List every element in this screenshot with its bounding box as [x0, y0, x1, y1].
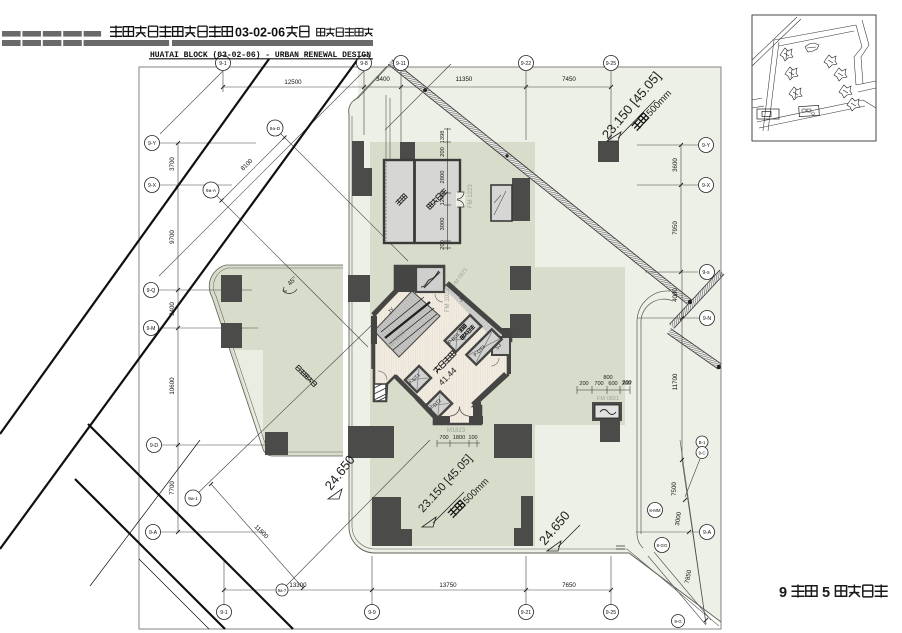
svg-text:200: 200 — [622, 380, 631, 386]
svg-text:7450: 7450 — [562, 76, 576, 83]
svg-text:10600: 10600 — [169, 377, 176, 395]
svg-text:1200: 1200 — [440, 193, 446, 206]
svg-text:9-22: 9-22 — [521, 61, 531, 67]
svg-text:9-25: 9-25 — [606, 61, 616, 67]
svg-text:9a-7: 9a-7 — [278, 588, 287, 593]
svg-text:9-D: 9-D — [150, 443, 159, 449]
svg-text:9-1: 9-1 — [220, 610, 228, 616]
svg-text:2800: 2800 — [440, 171, 446, 184]
svg-text:9-s: 9-s — [702, 270, 710, 276]
svg-text:9-9: 9-9 — [368, 610, 376, 616]
svg-text:3600: 3600 — [672, 158, 679, 172]
svg-text:3400: 3400 — [376, 76, 390, 83]
svg-text:FM 1223: FM 1223 — [468, 184, 474, 208]
svg-text:9-M: 9-M — [147, 326, 156, 332]
svg-text:1398: 1398 — [440, 131, 446, 144]
svg-text:9a-A: 9a-A — [206, 188, 217, 194]
svg-text:600: 600 — [608, 381, 617, 387]
svg-text:11700: 11700 — [672, 373, 679, 390]
svg-text:3000: 3000 — [440, 218, 446, 231]
svg-text:8-GG: 8-GG — [657, 543, 668, 548]
svg-text:100: 100 — [468, 435, 477, 441]
svg-text:12500: 12500 — [284, 79, 302, 86]
svg-text:9-25: 9-25 — [606, 610, 616, 616]
svg-text:3400: 3400 — [169, 302, 176, 316]
svg-text:7950: 7950 — [672, 221, 679, 235]
svg-text:7700: 7700 — [169, 481, 176, 495]
svg-text:9-X: 9-X — [702, 183, 711, 189]
svg-text:9-C: 9-C — [698, 451, 705, 456]
svg-text:9-G: 9-G — [674, 619, 682, 624]
svg-text:FM 1023: FM 1023 — [445, 288, 451, 312]
svg-text:700: 700 — [439, 435, 448, 441]
svg-text:9-Y: 9-Y — [702, 143, 711, 149]
svg-text:9a-D: 9a-D — [270, 126, 281, 132]
svg-text:9-Y: 9-Y — [148, 141, 157, 147]
svg-text:700: 700 — [594, 381, 603, 387]
svg-text:03-02-06: 03-02-06 — [235, 26, 285, 40]
svg-text:9-11: 9-11 — [396, 61, 406, 67]
svg-text:9: 9 — [779, 585, 787, 601]
svg-text:5: 5 — [822, 585, 830, 601]
svg-text:13750: 13750 — [439, 582, 457, 589]
svg-text:7650: 7650 — [562, 582, 576, 589]
svg-text:9-8: 9-8 — [360, 61, 368, 67]
svg-text:200: 200 — [440, 147, 446, 157]
svg-text:B-1: B-1 — [699, 440, 706, 445]
svg-text:13300: 13300 — [289, 582, 307, 589]
svg-text:9-1: 9-1 — [219, 61, 227, 67]
svg-text:3700: 3700 — [169, 157, 176, 171]
svg-text:9-N: 9-N — [703, 316, 712, 322]
svg-text:4000: 4000 — [672, 288, 679, 302]
svg-text:8-MM: 8-MM — [649, 508, 661, 513]
svg-text:9-X: 9-X — [148, 183, 157, 189]
svg-text:FM 0821: FM 0821 — [597, 396, 619, 402]
svg-text:9700: 9700 — [169, 230, 176, 244]
svg-text:9-21: 9-21 — [521, 610, 531, 616]
svg-text:8100: 8100 — [240, 157, 255, 172]
svg-text:7500: 7500 — [671, 482, 678, 496]
svg-text:1800: 1800 — [453, 435, 465, 441]
svg-text:9-A: 9-A — [149, 530, 158, 536]
svg-text:200: 200 — [440, 240, 446, 250]
svg-text:M1823: M1823 — [447, 428, 466, 434]
svg-text:200: 200 — [579, 381, 588, 387]
svg-text:11350: 11350 — [456, 76, 473, 83]
svg-text:9-Q: 9-Q — [147, 288, 156, 294]
svg-text:9-A: 9-A — [703, 530, 712, 536]
svg-text:9a-1: 9a-1 — [188, 496, 198, 502]
